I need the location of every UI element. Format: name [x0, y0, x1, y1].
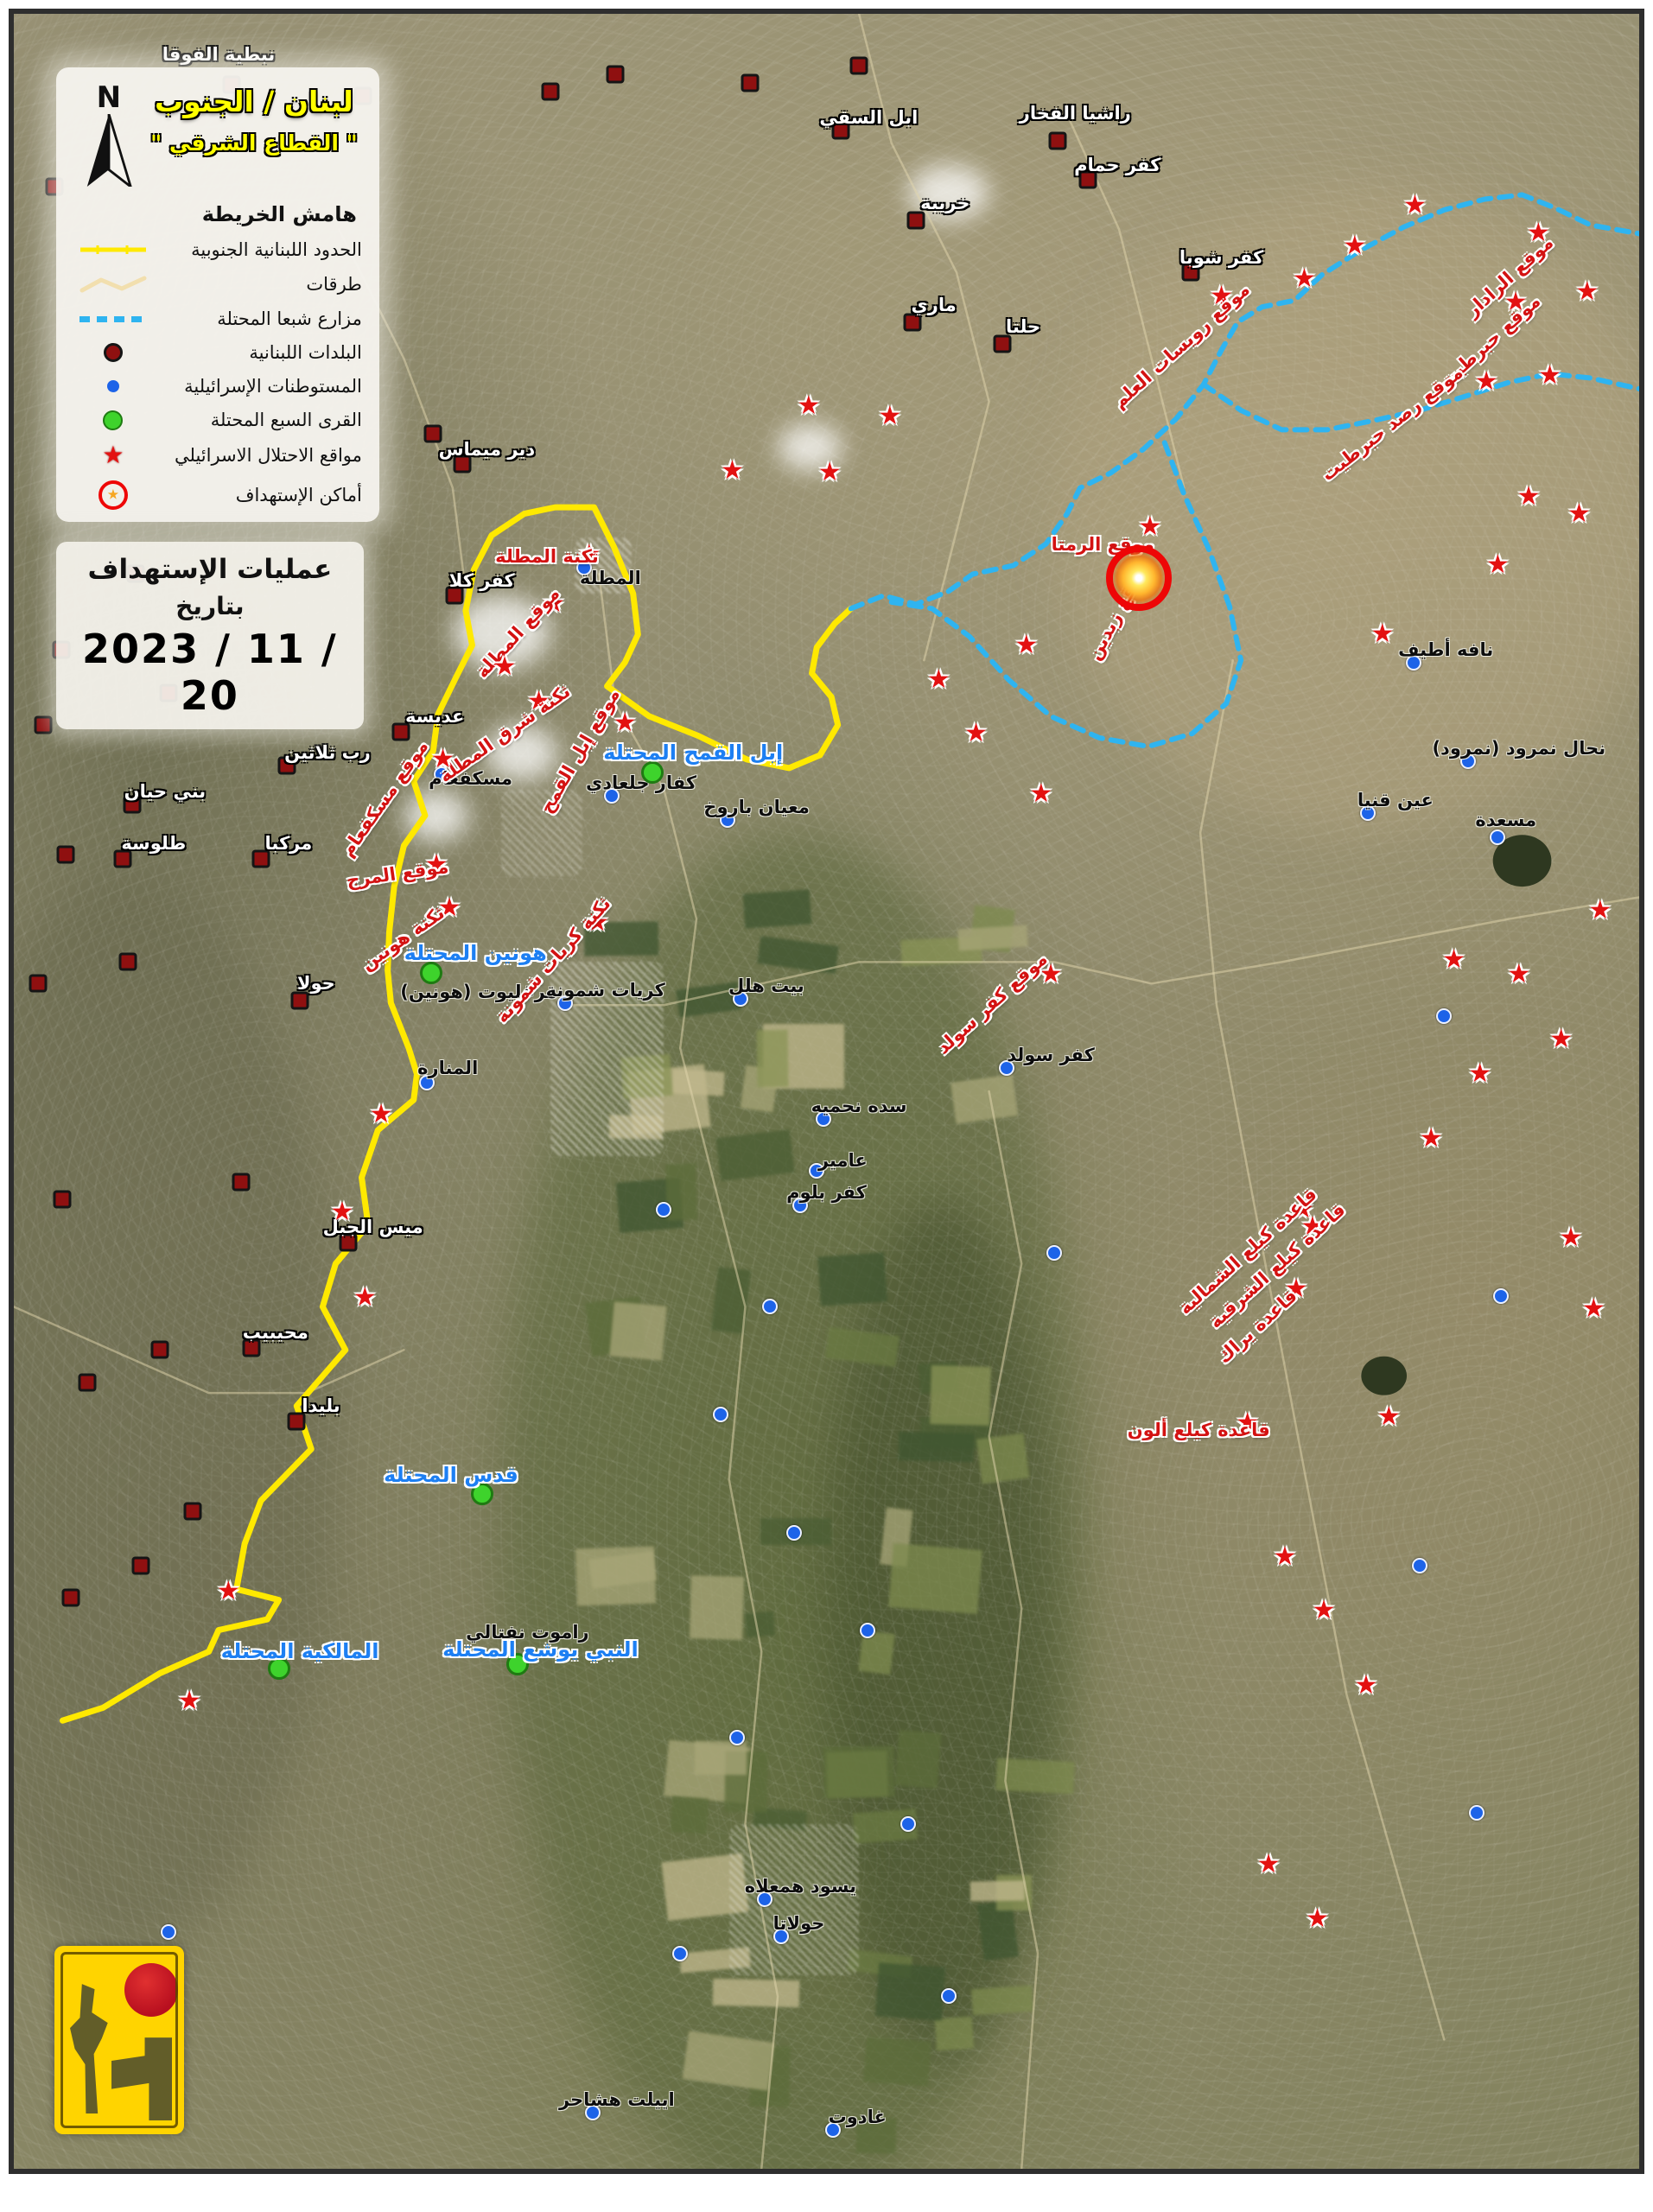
compass-rose: N — [72, 83, 146, 190]
occupation-site-star-icon: ★ — [72, 443, 155, 467]
legend-item: أماكن الإستهداف — [72, 480, 362, 510]
operations-date-value: 2023 / 11 / 20 — [65, 626, 355, 719]
map-title: لبنان / الجنوب — [146, 83, 362, 122]
legend-item-label: مزارع شبعا المحتلة — [155, 308, 362, 329]
legend-item: المستوطنات الإسرائيلية — [72, 376, 362, 397]
road-line — [1200, 660, 1444, 2039]
shebaa-farms-boundary-line — [851, 194, 1639, 608]
legend-item: القرى السبع المحتلة — [72, 410, 362, 430]
emblem-inner-border — [60, 1952, 178, 2128]
north-arrow-icon — [86, 114, 132, 187]
target-ring-icon — [1106, 545, 1172, 611]
operations-date-box: عمليات الإستهداف بتاريخ 2023 / 11 / 20 — [56, 542, 364, 729]
legend-item: مواقع الاحتلال الاسرائيلي★ — [72, 443, 362, 467]
legend-header-block: N لبنان / الجنوب " القطاع الشرقي " — [72, 83, 362, 190]
occupied-village-dot-icon — [72, 410, 155, 430]
legend-item-label: طرقات — [155, 274, 362, 295]
target-strike-marker — [1106, 545, 1172, 611]
legend-item: مزارع شبعا المحتلة — [72, 308, 362, 329]
page: { "legend": { "compass_label": "N", "tit… — [0, 0, 1653, 2212]
legend-item-label: الحدود اللبنانية الجنوبية — [155, 239, 362, 260]
legend-titles: لبنان / الجنوب " القطاع الشرقي " — [146, 83, 362, 156]
road-line — [989, 1091, 1038, 2169]
map-subtitle: " القطاع الشرقي " — [146, 130, 362, 156]
border-line-icon — [72, 244, 155, 256]
lake — [1361, 1357, 1407, 1395]
road-line-icon — [72, 273, 155, 296]
road-line — [599, 574, 778, 2169]
lake — [1493, 835, 1552, 887]
operations-date-word: بتاريخ — [65, 592, 355, 620]
compass-north-label: N — [72, 83, 146, 112]
shebaa-farms-boundary-line — [892, 442, 1241, 747]
israeli-settlement-dot-icon — [72, 380, 155, 392]
targeting-location-icon — [72, 480, 155, 510]
operations-title: عمليات الإستهداف — [65, 554, 355, 585]
legend-item: الحدود اللبنانية الجنوبية — [72, 239, 362, 260]
legend-item: طرقات — [72, 273, 362, 296]
road-line — [859, 14, 989, 660]
map-canvas: نبطية الفوقاابل السقيراشيا الفخاركفر حما… — [9, 9, 1644, 2174]
legend-item-label: المستوطنات الإسرائيلية — [155, 376, 362, 397]
legend-item-label: القرى السبع المحتلة — [155, 410, 362, 430]
road-line — [1071, 122, 1185, 488]
lebanese-town-dot-icon — [72, 343, 155, 362]
legend-section-header: هامش الخريطة — [72, 202, 357, 226]
legend-item-label: مواقع الاحتلال الاسرائيلي — [155, 445, 362, 466]
organization-emblem — [54, 1946, 184, 2134]
road-line — [567, 898, 1639, 1006]
legend-item-label: أماكن الإستهداف — [155, 485, 362, 505]
legend-item: البلدات اللبنانية — [72, 342, 362, 363]
legend-panel: N لبنان / الجنوب " القطاع الشرقي " هامش … — [56, 67, 379, 522]
shebaa-dashed-line-icon — [72, 316, 155, 322]
legend-item-label: البلدات اللبنانية — [155, 342, 362, 363]
legend-items: الحدود اللبنانية الجنوبيةطرقاتمزارع شبعا… — [72, 239, 362, 510]
shebaa-farms-boundary-line — [1204, 373, 1639, 429]
